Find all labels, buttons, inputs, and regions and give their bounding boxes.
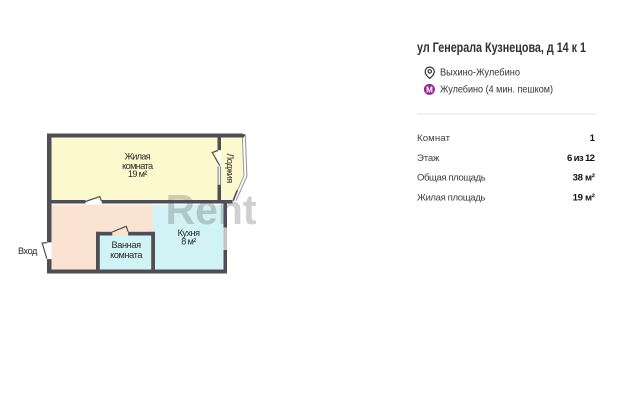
svg-text:6 из 12: 6 из 12: [567, 153, 595, 164]
svg-text:Лоджия: Лоджия: [225, 153, 235, 183]
svg-text:19 м²: 19 м²: [128, 169, 147, 179]
svg-text:Жулебино (4 мин. пешком): Жулебино (4 мин. пешком): [440, 85, 553, 96]
svg-text:Вход: Вход: [18, 246, 38, 256]
svg-text:ул Генерала Кузнецова, д 14 к: ул Генерала Кузнецова, д 14 к 1: [417, 40, 586, 55]
svg-text:М: М: [426, 85, 433, 95]
svg-text:Жилая площадь: Жилая площадь: [417, 193, 485, 204]
svg-text:1: 1: [590, 133, 596, 144]
svg-text:19 м²: 19 м²: [573, 193, 595, 204]
svg-text:Этаж: Этаж: [417, 153, 440, 164]
svg-text:38 м²: 38 м²: [573, 173, 595, 184]
svg-text:Комнат: Комнат: [417, 133, 451, 144]
svg-text:Ванная: Ванная: [112, 240, 142, 250]
svg-text:Общая площадь: Общая площадь: [417, 173, 486, 184]
svg-text:Выхино-Жулебино: Выхино-Жулебино: [440, 68, 521, 79]
svg-text:комната: комната: [110, 250, 143, 260]
svg-text:Жилая: Жилая: [125, 151, 151, 161]
svg-text:Rent: Rent: [166, 186, 257, 233]
svg-text:8 м²: 8 м²: [181, 236, 196, 246]
